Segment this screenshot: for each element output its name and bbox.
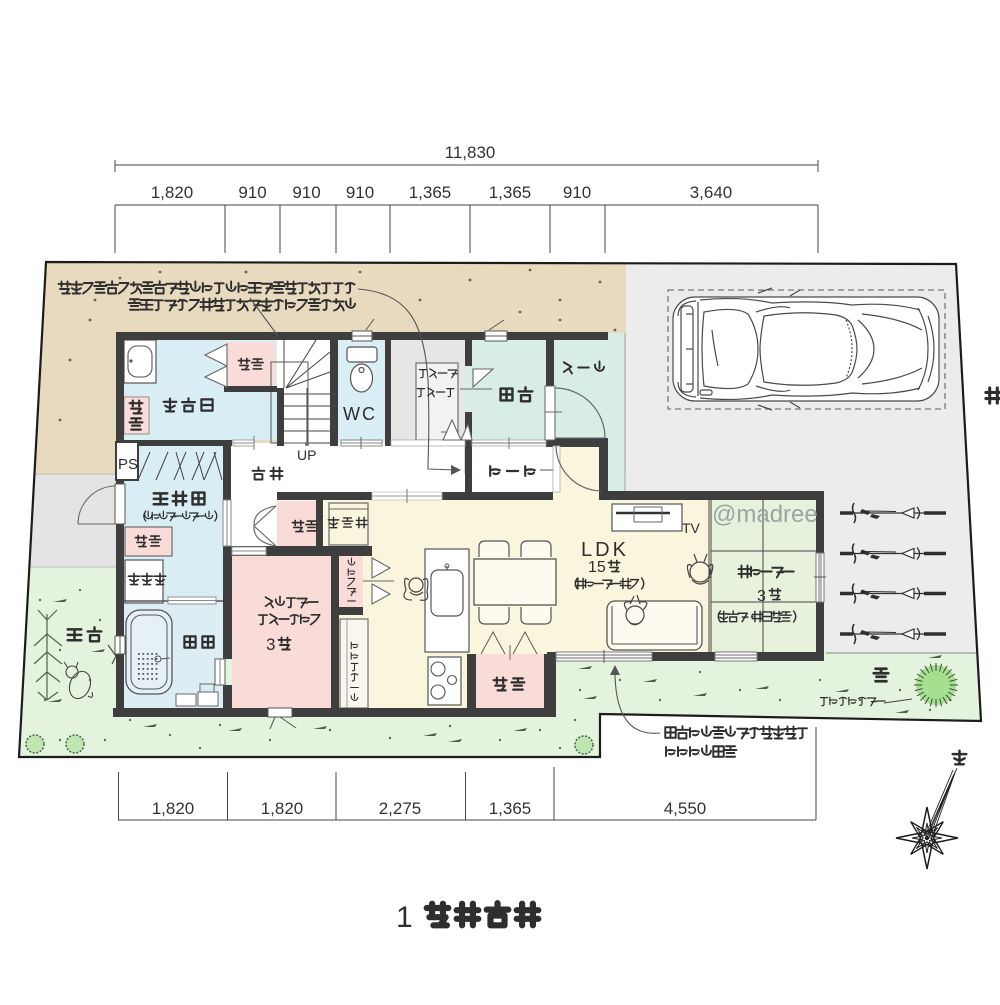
svg-text:UP: UP <box>297 447 316 463</box>
svg-text:910: 910 <box>238 183 266 202</box>
svg-text:PS: PS <box>118 456 138 473</box>
svg-text:2,275: 2,275 <box>379 799 422 818</box>
svg-text:1,365: 1,365 <box>489 183 532 202</box>
svg-text:3: 3 <box>757 588 766 605</box>
svg-text:4,550: 4,550 <box>664 799 707 818</box>
svg-text:1: 1 <box>396 901 413 934</box>
svg-text:11,830: 11,830 <box>445 143 496 162</box>
svg-text:TV: TV <box>682 520 701 536</box>
svg-text:@madree: @madree <box>712 501 818 528</box>
svg-text:910: 910 <box>346 183 374 202</box>
svg-text:3: 3 <box>266 635 275 654</box>
svg-text:910: 910 <box>563 183 591 202</box>
svg-text:1,365: 1,365 <box>409 183 452 202</box>
svg-text:1,820: 1,820 <box>261 799 304 818</box>
svg-text:15: 15 <box>588 559 606 576</box>
svg-text:1,820: 1,820 <box>152 799 195 818</box>
svg-text:WC: WC <box>343 404 377 424</box>
svg-text:LDK: LDK <box>581 539 629 561</box>
svg-text:910: 910 <box>292 183 320 202</box>
svg-text:1,365: 1,365 <box>489 799 532 818</box>
svg-text:1,820: 1,820 <box>151 183 194 202</box>
svg-text:3,640: 3,640 <box>690 183 733 202</box>
